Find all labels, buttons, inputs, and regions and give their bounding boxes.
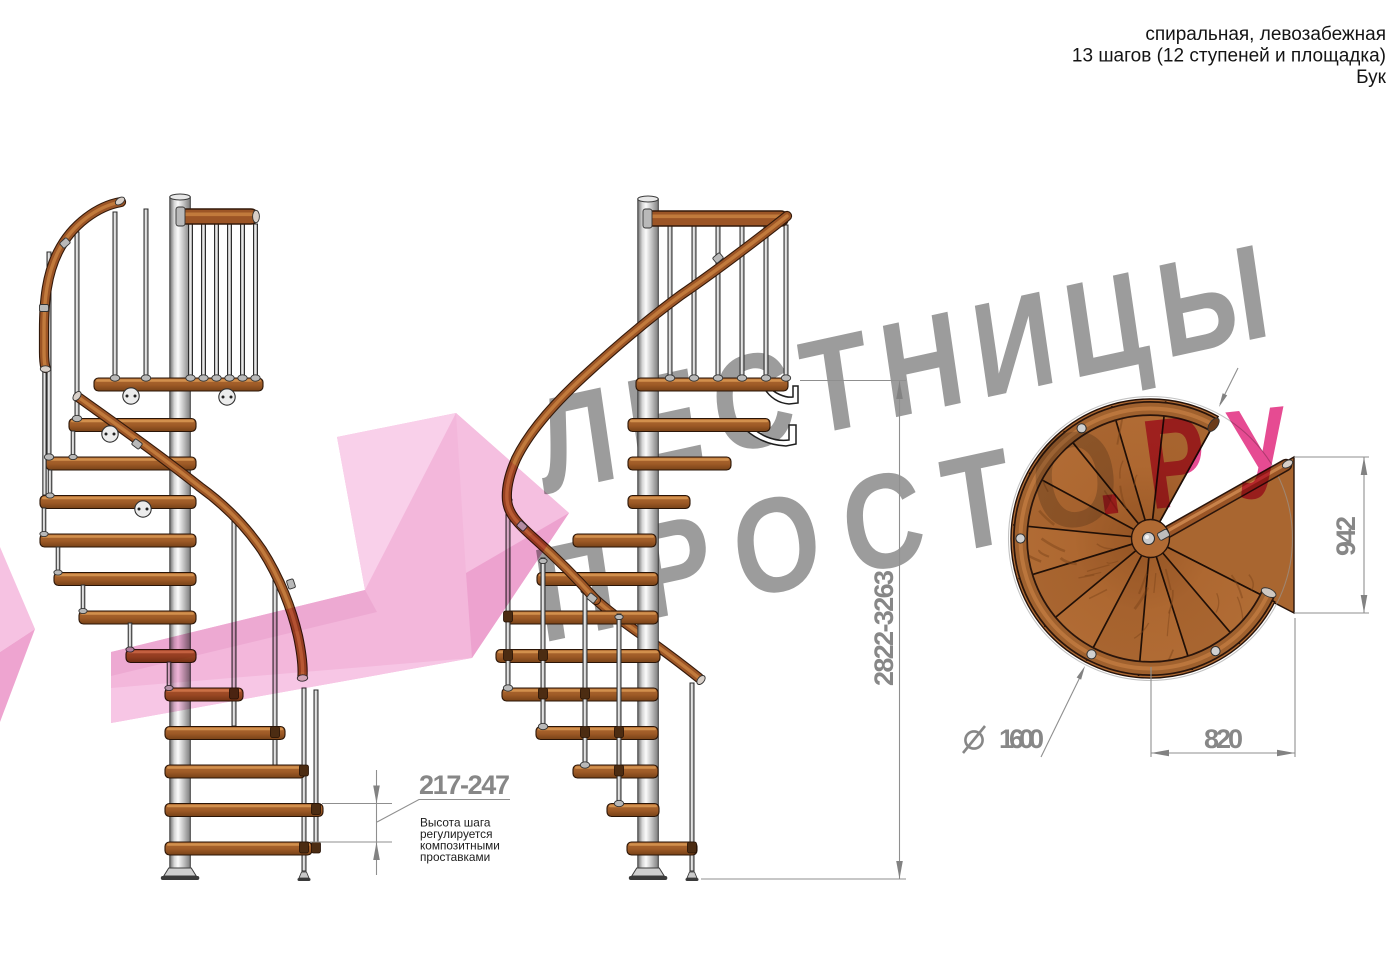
svg-text:820: 820: [1204, 724, 1243, 754]
svg-text:942: 942: [1331, 516, 1361, 556]
svg-text:13 шагов (12 ступеней и площад: 13 шагов (12 ступеней и площадка): [1072, 46, 1386, 67]
svg-text:217-247: 217-247: [419, 770, 510, 800]
svg-text:спиральная, левозабежная: спиральная, левозабежная: [1145, 24, 1386, 45]
svg-text:1600: 1600: [999, 724, 1044, 754]
svg-text:2822-3263: 2822-3263: [869, 570, 899, 686]
svg-text:Бук: Бук: [1356, 67, 1387, 88]
svg-text:проставками: проставками: [420, 850, 490, 864]
